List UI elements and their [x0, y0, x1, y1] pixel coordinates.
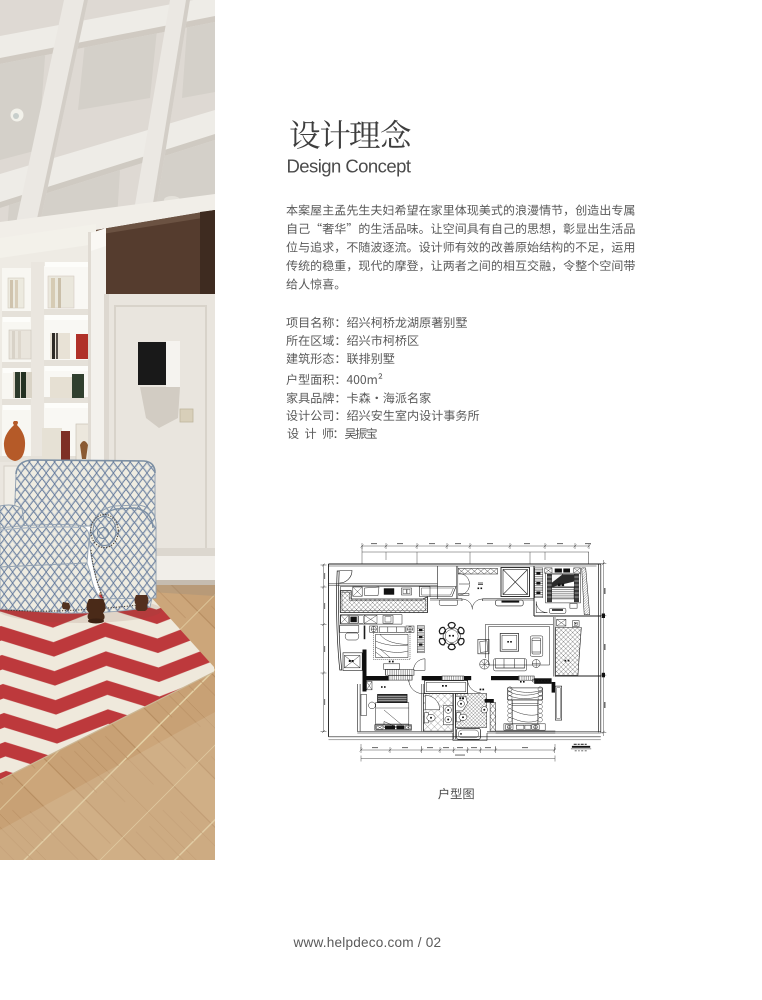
svg-text:Design Concept: Design Concept: [287, 156, 411, 177]
svg-text:www.helpdeco.com / 02: www.helpdeco.com / 02: [293, 935, 442, 950]
